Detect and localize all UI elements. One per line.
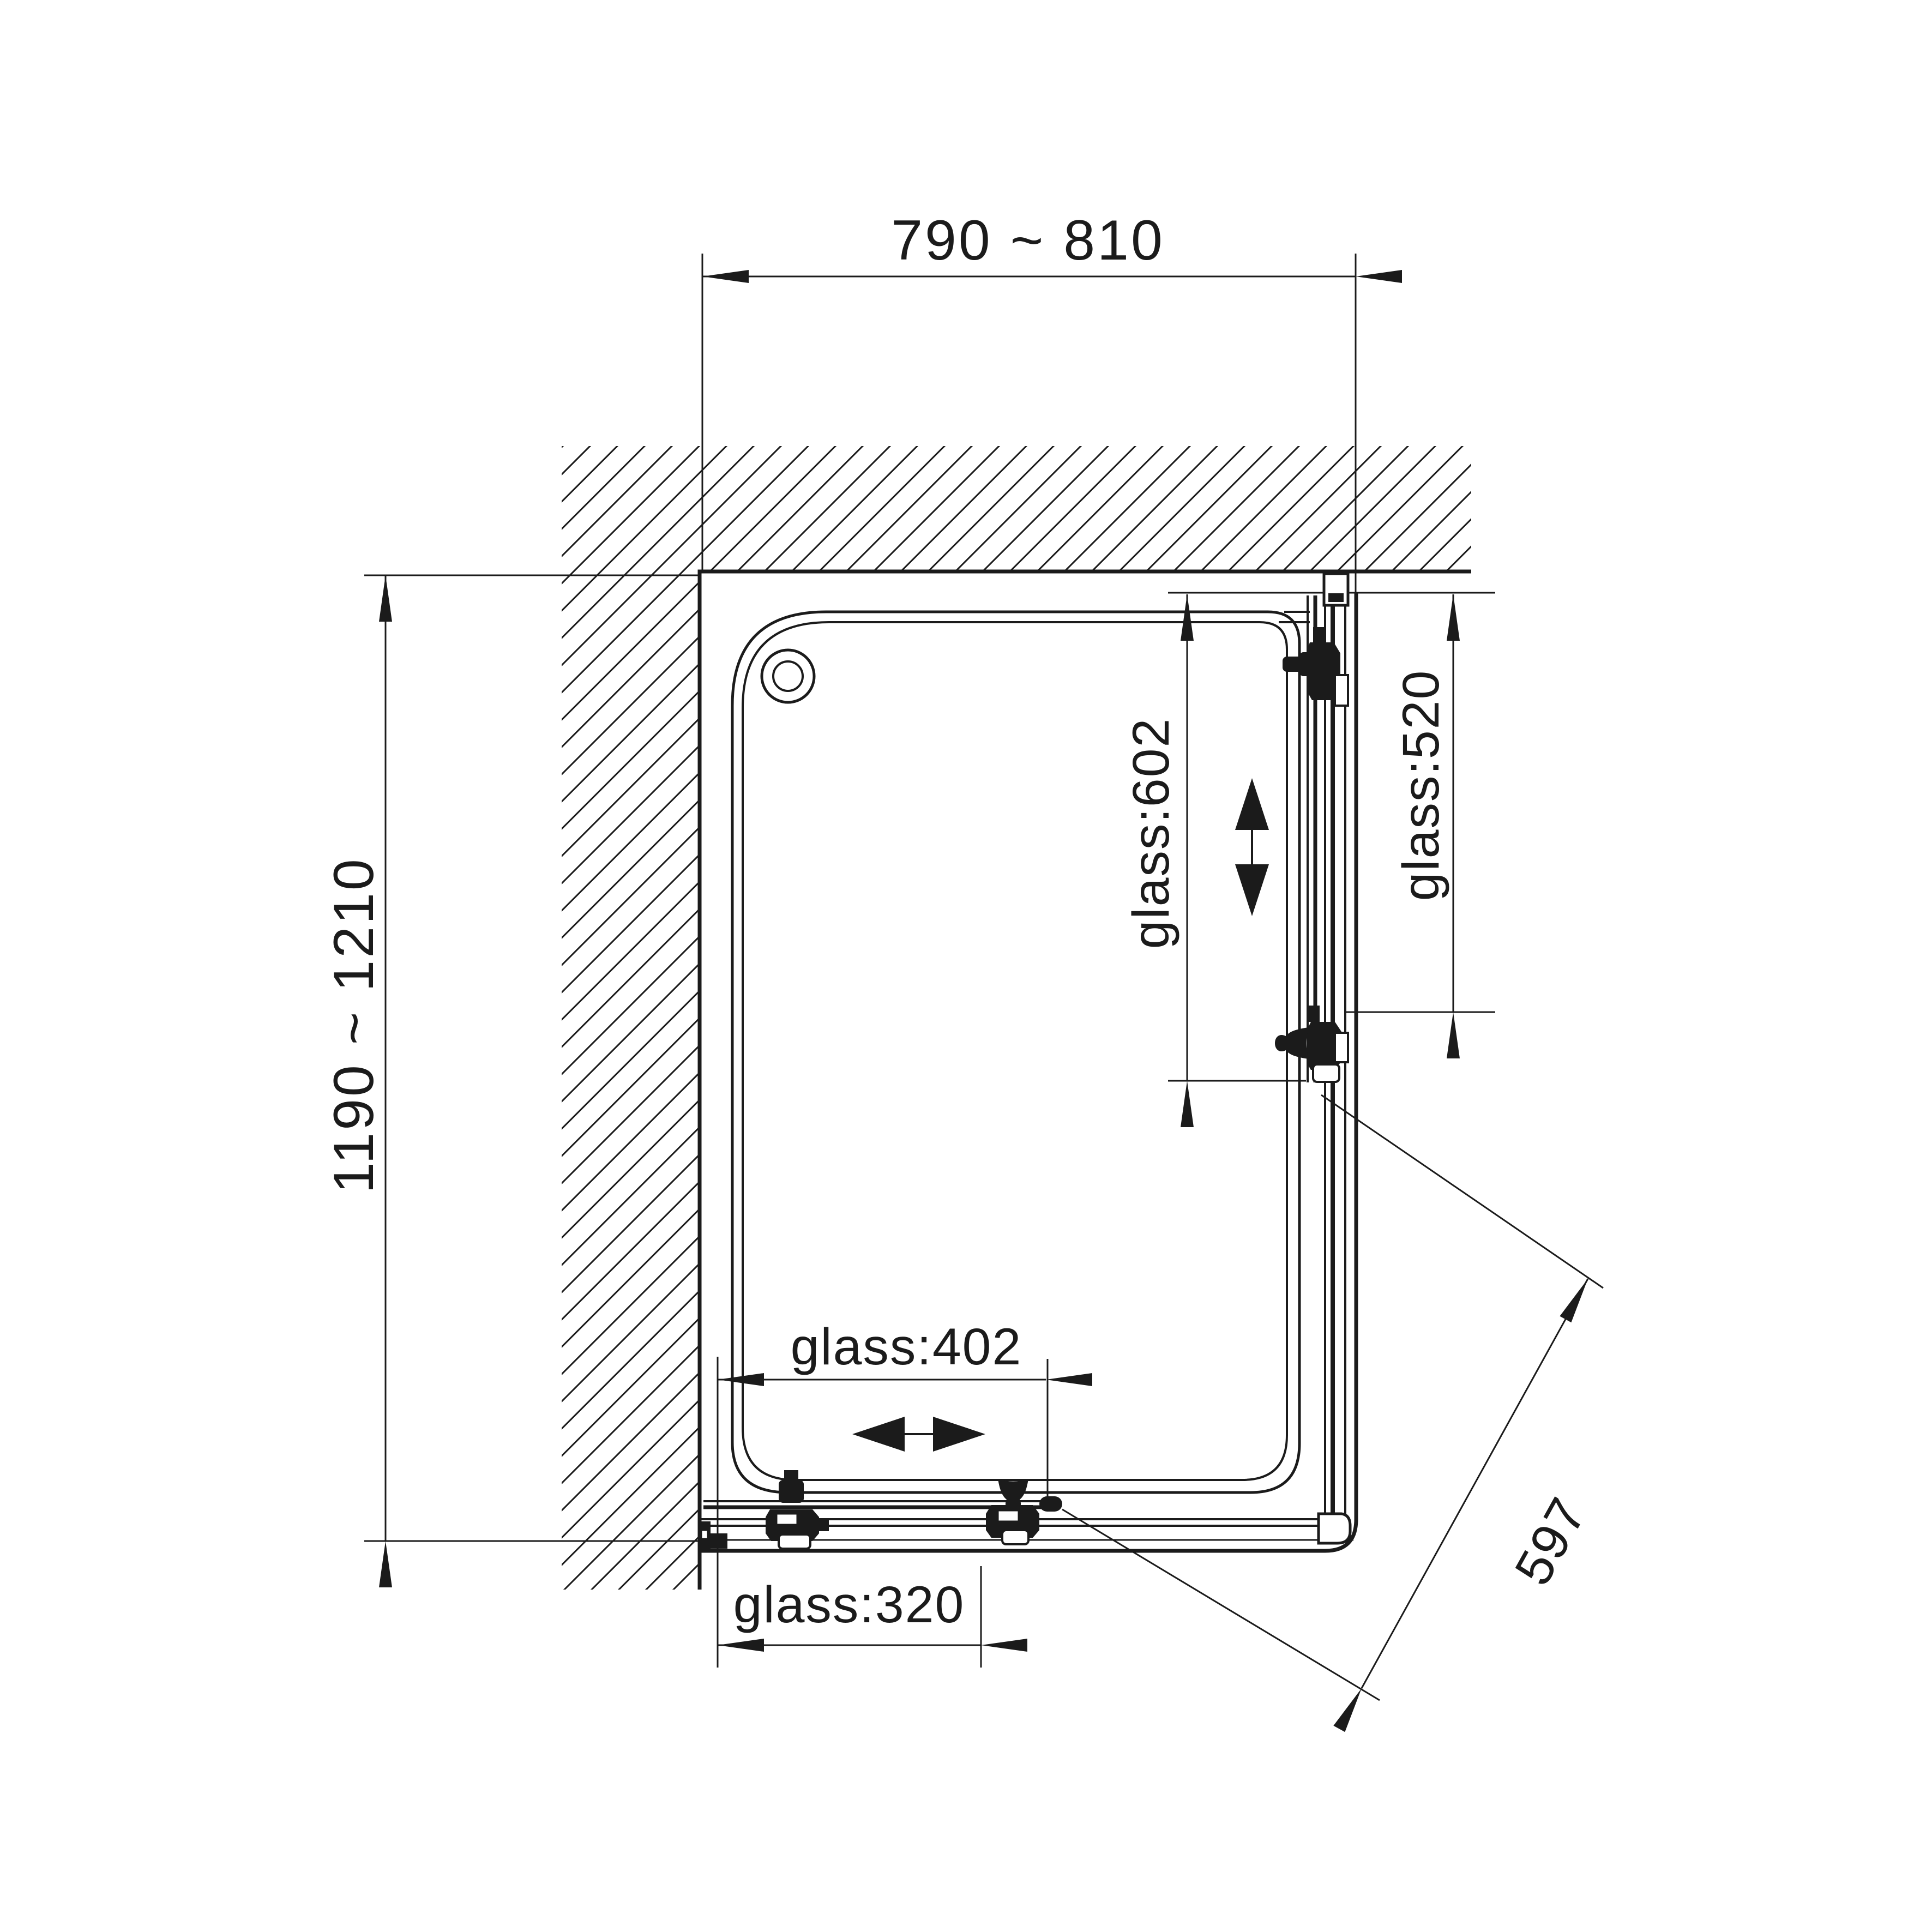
bottom-door-assembly xyxy=(699,1470,1350,1551)
dim-label-width: 790 ~ 810 xyxy=(891,209,1165,272)
dim-label-glass-602: glass:602 xyxy=(1122,718,1180,949)
right-bottom-roller xyxy=(1307,1006,1348,1082)
bottom-door-end-cap xyxy=(1039,1496,1062,1512)
dim-glass-602: glass:602 xyxy=(1122,594,1306,1081)
dim-label-diagonal: 597 xyxy=(1504,1488,1598,1594)
bottom-left-roller xyxy=(766,1470,829,1549)
slide-arrow-horizontal xyxy=(852,1417,985,1452)
enclosure-outer-frame xyxy=(699,593,1495,1551)
ext-line xyxy=(1321,1095,1603,1288)
dim-label-depth: 1190 ~ 1210 xyxy=(322,857,386,1194)
right-wall-bracket-detail xyxy=(1328,593,1344,602)
dim-label-glass-402: glass:402 xyxy=(791,1318,1022,1376)
dim-line xyxy=(1362,1279,1588,1688)
dim-label-glass-520: glass:520 xyxy=(1392,670,1450,901)
right-top-roller xyxy=(1283,627,1348,706)
technical-drawing-page: 790 ~ 810 1190 ~ 1210 glass:602 glass:52… xyxy=(0,0,1932,1932)
slide-arrow-vertical xyxy=(1235,778,1269,916)
drain-outer-circle xyxy=(762,650,814,702)
outer-frame-line xyxy=(699,593,1356,1551)
dim-label-glass-320: glass:320 xyxy=(733,1576,965,1634)
dim-glass-320: glass:320 xyxy=(718,1566,981,1668)
dim-glass-520: glass:520 xyxy=(1344,594,1495,1012)
shower-enclosure-plan-drawing: 790 ~ 810 1190 ~ 1210 glass:602 glass:52… xyxy=(0,0,1932,1932)
corner-block xyxy=(1319,1514,1350,1543)
bottom-right-roller xyxy=(986,1505,1039,1544)
right-door-handle-knob xyxy=(1275,1027,1309,1059)
drain-inner-circle xyxy=(773,661,803,691)
